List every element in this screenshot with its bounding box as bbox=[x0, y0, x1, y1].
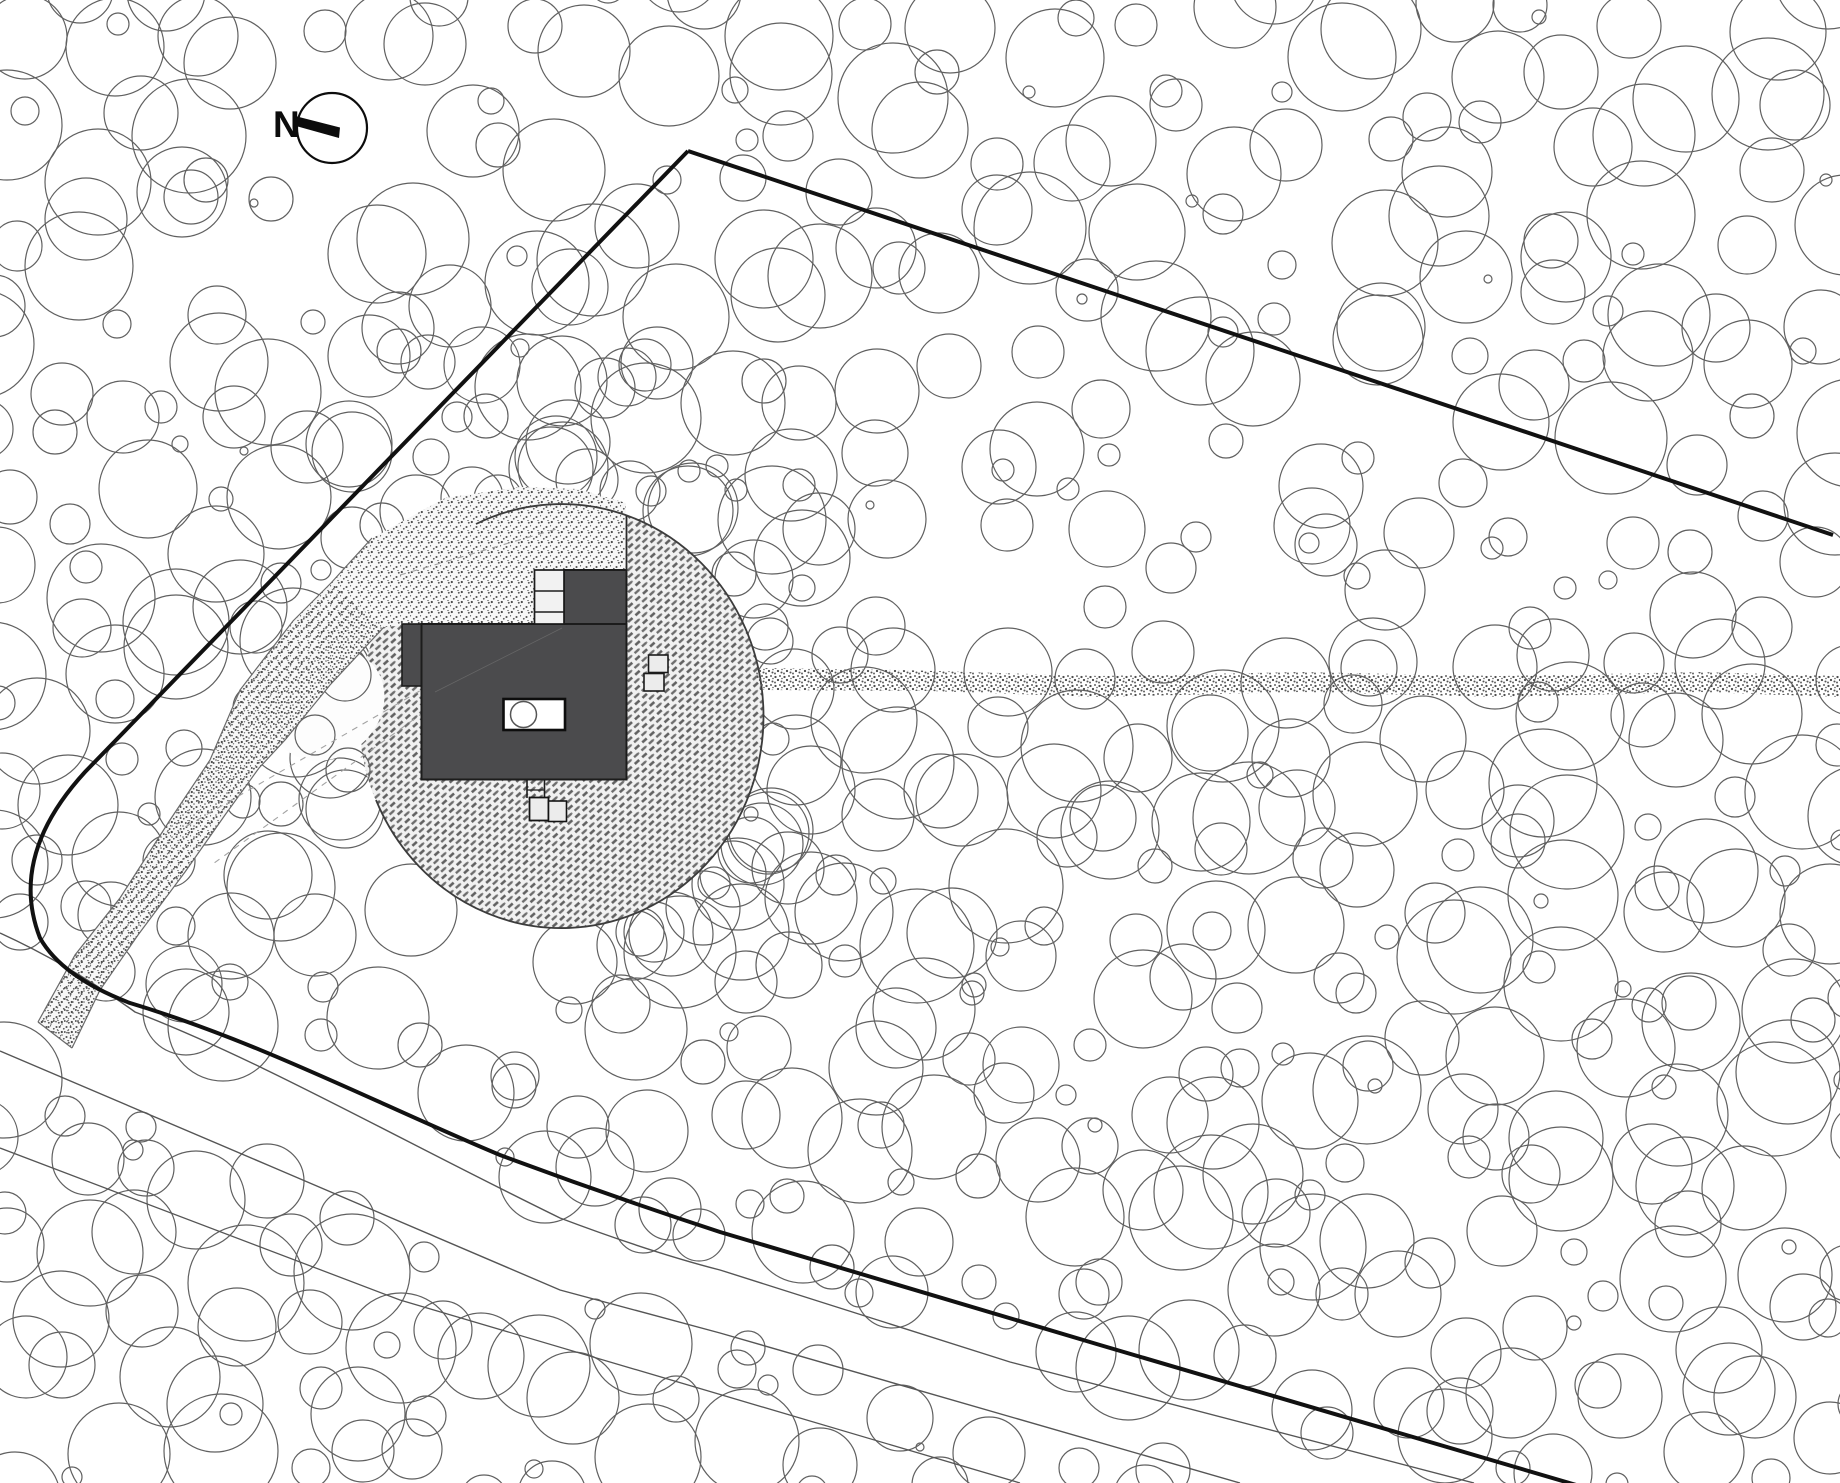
svg-text:N: N bbox=[273, 104, 300, 145]
